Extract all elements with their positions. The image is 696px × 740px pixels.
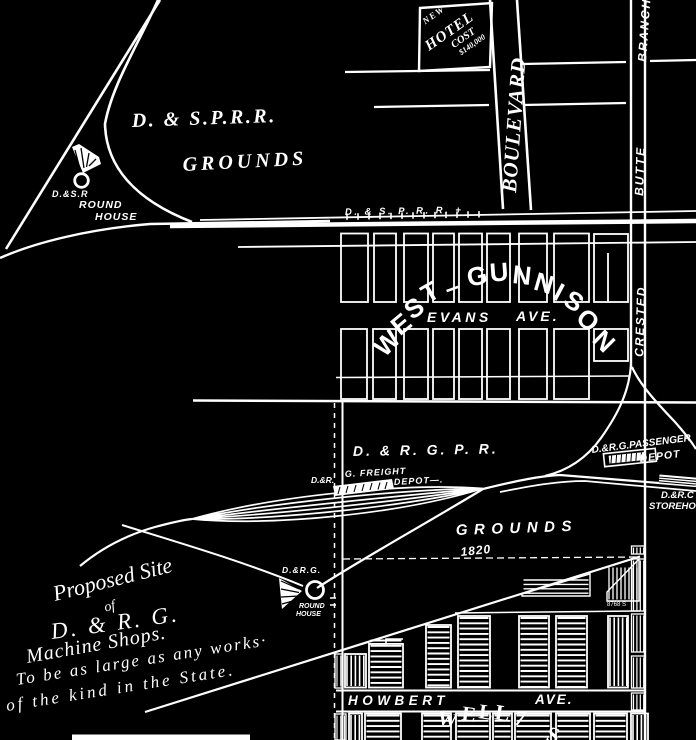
svg-text:HOUSE: HOUSE [95,211,137,223]
svg-text:CRESTED: CRESTED [632,285,648,357]
svg-text:W: W [436,708,458,732]
svg-text:EVANS: EVANS [427,309,492,325]
svg-text:D.&R.C: D.&R.C [661,490,694,501]
svg-text:U: U [489,256,510,287]
svg-text:D.&S.R: D.&S.R [52,189,89,199]
svg-text:HOUSE: HOUSE [296,611,321,618]
svg-text:STOREHOUSE: STOREHOUSE [649,501,696,512]
svg-text:D.&R.G.: D.&R.G. [282,565,321,575]
svg-text:N: N [511,259,533,291]
svg-text:AVE.: AVE. [534,692,574,707]
svg-text:BUTTE: BUTTE [632,146,648,196]
svg-text:D.&R.: D.&R. [311,475,334,485]
svg-text:8768 S: 8768 S [607,602,626,608]
svg-text:D. & R. G. P. R.: D. & R. G. P. R. [353,440,499,459]
svg-text:ROUND: ROUND [299,603,325,610]
svg-text:AVE.: AVE. [515,308,560,324]
svg-text:D. & S. P. R. R. +: D. & S. P. R. R. + [345,205,464,218]
svg-text:ROUND: ROUND [79,199,123,211]
svg-text:HOWBERT: HOWBERT [348,693,449,708]
